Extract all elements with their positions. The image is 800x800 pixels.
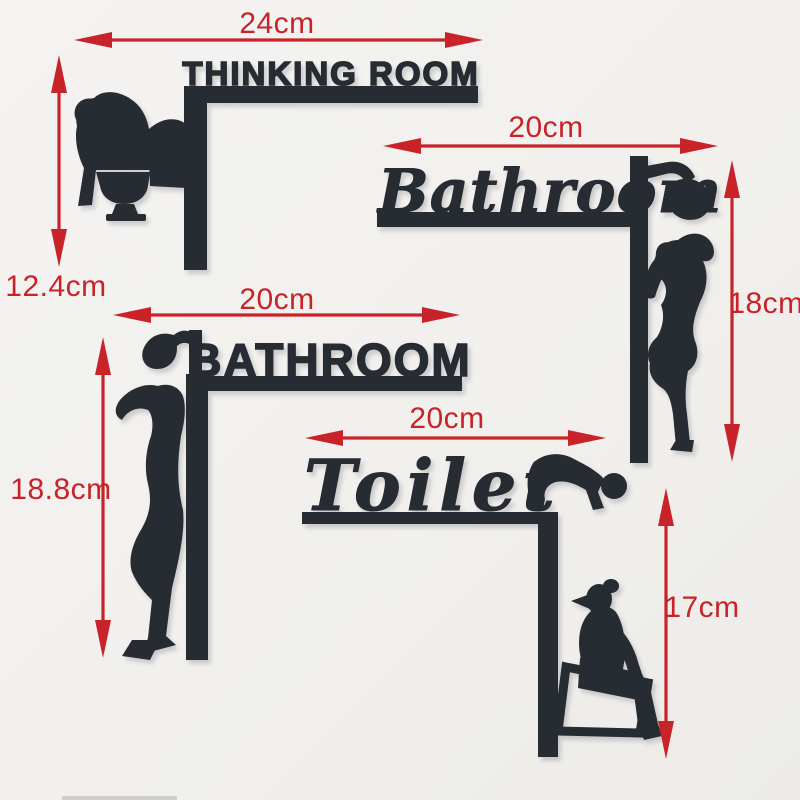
thinker-on-toilet-figure [75,92,187,221]
toilet-pedestal [112,204,138,214]
woman-foot [670,440,694,452]
dimension-width-toilet: 20cm [305,402,606,446]
arrow-head-up [658,488,674,526]
arrow-head-down [724,424,740,462]
toilet-base [106,214,146,221]
woman-body [648,234,714,446]
arrow-head-up [95,337,111,375]
dimension-label-24cm: 24cm [239,7,314,40]
man-crossed-foot [122,640,160,660]
arrow-head-left [383,138,421,154]
dimension-label-18-8cm: 18.8cm [10,473,111,506]
showering-woman-figure [644,234,714,452]
toilet-outline [558,667,648,733]
thinking-room-vertical-bar [184,86,207,270]
dimension-label-18cm: 18cm [728,287,800,320]
crouching-man-figure [528,454,627,510]
sitting-woman-cap-visor [571,594,590,609]
arrow-head-down [51,229,67,267]
dimension-label-17cm: 17cm [664,591,739,624]
thinker-back-wave [148,119,186,188]
table-edge-shadow [62,796,177,800]
sitting-woman-figure [558,579,662,740]
dimension-height-bathroom-block: 18.8cm [10,337,111,658]
arrow-head-left [113,307,151,323]
arrow-head-down [658,721,674,759]
man-body [116,385,185,654]
sign-toilet-script: Toilet [302,444,662,757]
bathroom-script-vertical-bar [630,156,648,463]
dimension-label-20cm-c: 20cm [409,402,484,435]
arrow-head-left [74,32,112,48]
arrow-head-up [51,55,67,93]
arrow-head-up [724,160,740,198]
arrow-head-right [422,307,460,323]
dimension-height-toilet: 17cm [658,488,740,759]
dimension-label-20cm-a: 20cm [508,111,583,144]
bathroom-block-vertical-bar [186,374,208,660]
dimension-height-bathroom-script: 18cm [724,160,800,462]
sitting-woman-hair-bun [603,579,619,593]
arrow-head-right [568,430,606,446]
toilet-bowl [96,172,150,204]
crouching-man-body [528,454,604,510]
showering-man-figure [116,385,185,660]
product-photo: THINKING ROOM Bathroom [0,0,800,800]
thinking-room-horizontal-bar [184,86,478,103]
dimension-width-bathroom-block: 20cm [113,283,460,323]
arrow-head-down [95,620,111,658]
dimension-label-12-4cm: 12.4cm [5,270,106,303]
dimension-width-thinking-room: 24cm [74,7,483,48]
bathroom-block-horizontal-bar [186,376,462,391]
arrow-head-right [445,32,483,48]
shower-head-icon-2 [142,331,195,369]
product-photo-canvas: THINKING ROOM Bathroom [0,0,800,800]
crouching-man-head [601,473,627,499]
dimension-width-bathroom-script: 20cm [383,111,718,154]
dimension-label-20cm-b: 20cm [239,283,314,316]
bathroom-script-horizontal-bar [377,212,640,227]
arrow-head-right [680,138,718,154]
toilet-horizontal-bar [302,512,541,524]
